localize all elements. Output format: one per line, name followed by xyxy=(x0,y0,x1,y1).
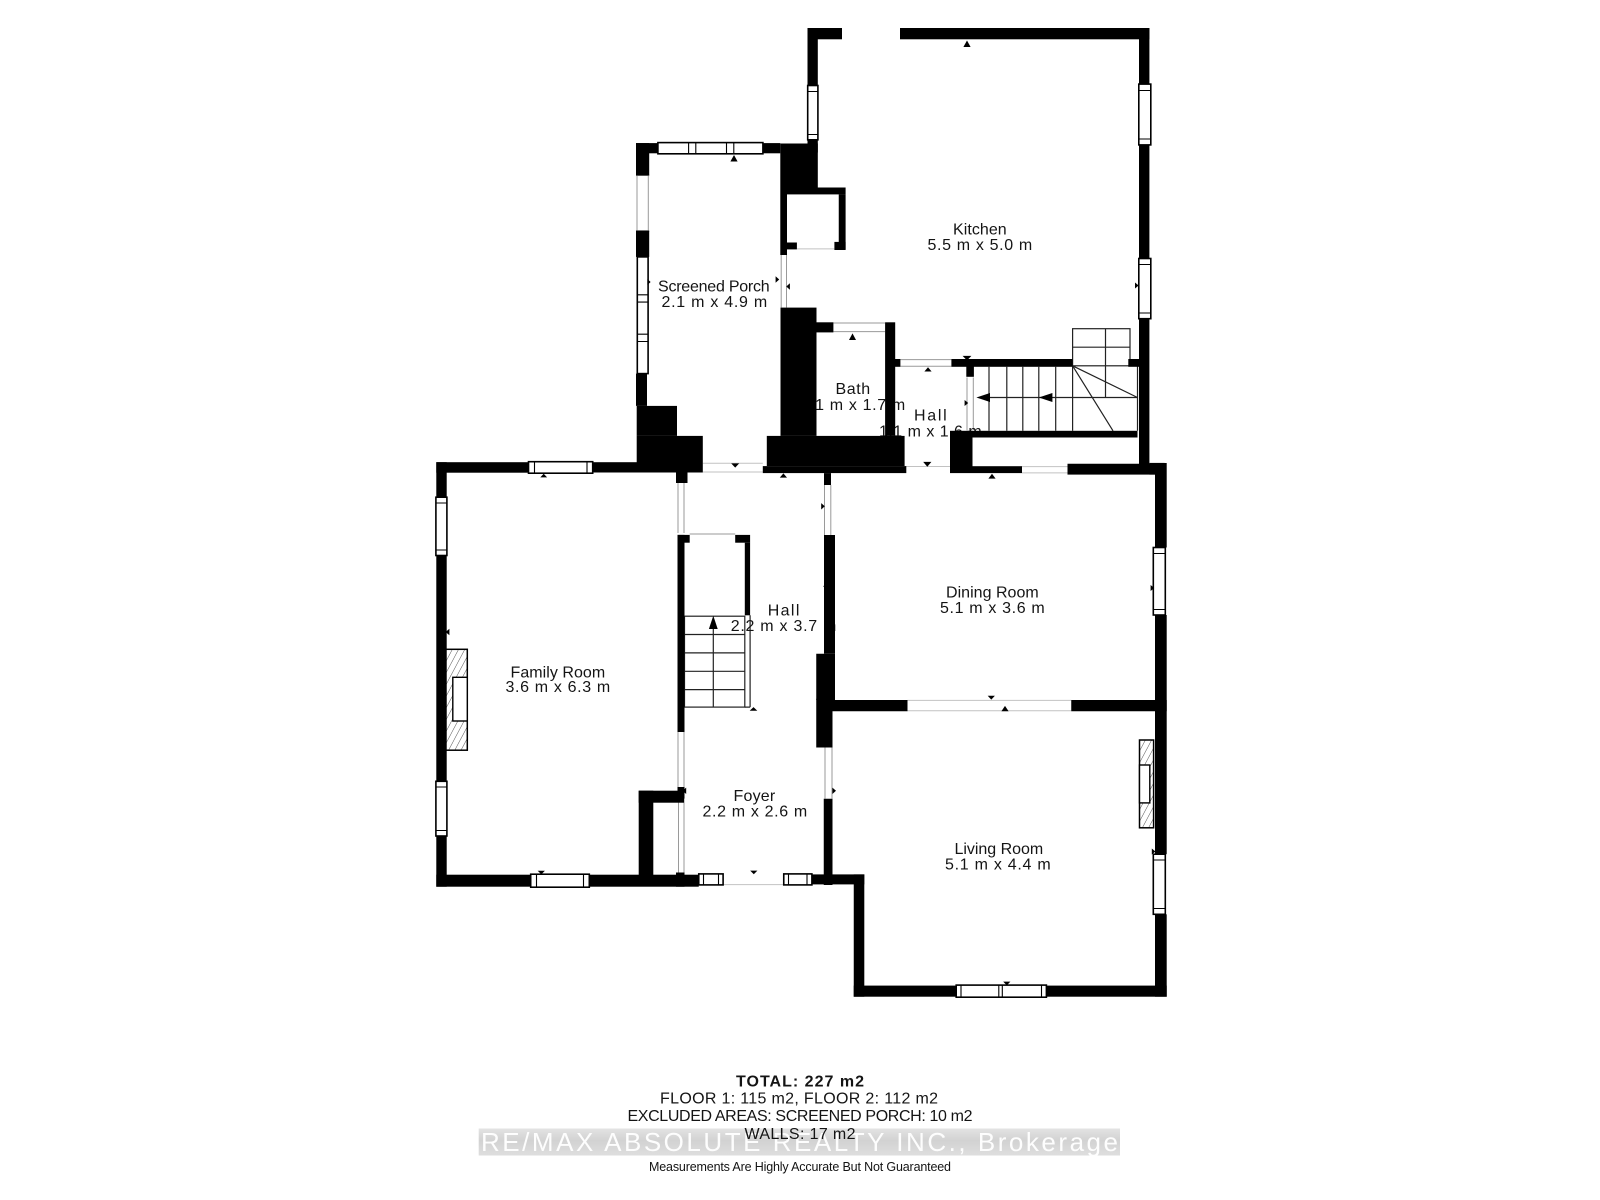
svg-text:3.6 m x 6.3 m: 3.6 m x 6.3 m xyxy=(506,679,611,696)
svg-text:TOTAL: 227 m2: TOTAL: 227 m2 xyxy=(736,1074,864,1091)
svg-text:Bath: Bath xyxy=(836,381,871,398)
svg-text:5.5 m x 5.0 m: 5.5 m x 5.0 m xyxy=(928,237,1033,254)
svg-text:2.2 m x 3.7 m: 2.2 m x 3.7 m xyxy=(731,618,837,635)
svg-text:Dining Room: Dining Room xyxy=(946,585,1039,602)
svg-text:2.2 m x 2.6 m: 2.2 m x 2.6 m xyxy=(703,803,808,820)
svg-text:EXCLUDED AREAS: SCREENED PORCH: EXCLUDED AREAS: SCREENED PORCH: 10 m2 xyxy=(628,1108,973,1125)
svg-text:Measurements Are Highly Accura: Measurements Are Highly Accurate But Not… xyxy=(649,1160,951,1174)
svg-text:Hall: Hall xyxy=(768,603,800,620)
svg-text:5.1 m x 3.6 m: 5.1 m x 3.6 m xyxy=(940,600,1045,617)
svg-text:WALLS: 17 m2: WALLS: 17 m2 xyxy=(745,1126,856,1143)
svg-text:5.1 m x 4.4 m: 5.1 m x 4.4 m xyxy=(945,857,1051,874)
svg-text:FLOOR 1: 115 m2, FLOOR 2: 112: FLOOR 1: 115 m2, FLOOR 2: 112 m2 xyxy=(660,1091,938,1108)
svg-text:2.1 m x 4.9 m: 2.1 m x 4.9 m xyxy=(662,294,768,311)
